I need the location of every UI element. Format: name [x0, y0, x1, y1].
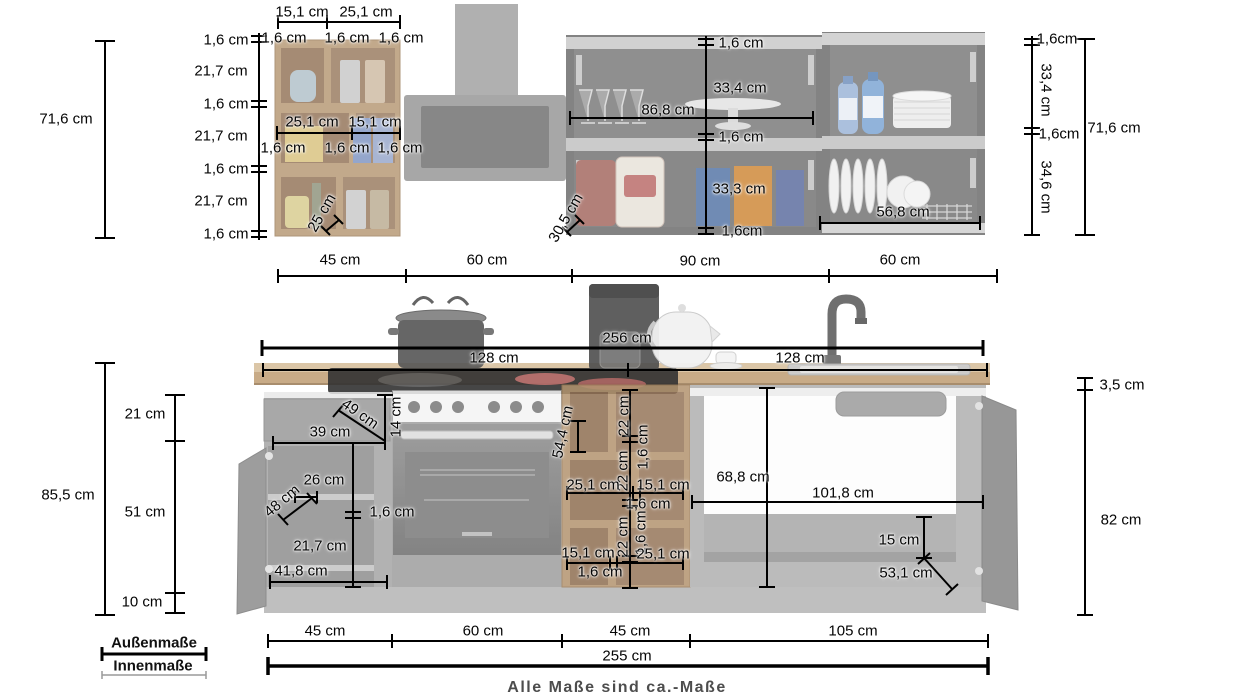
dim-label-right-heights: 82 cm: [1101, 513, 1142, 528]
dim-label-wall-shelf-left: 1,6 cm: [324, 141, 369, 156]
dim-label-base-cabinet-left: 48 cm: [262, 482, 303, 520]
dim-label-wall-unit-right: 1,6cm: [1039, 127, 1080, 142]
dim-label-wall-shelf-left: 15,1 cm: [348, 115, 401, 130]
dim-label-wall-shelf-left: 1,6 cm: [203, 162, 248, 177]
dim-label-wall-shelf-left: 1,6 cm: [260, 141, 305, 156]
dim-label-base-left-heights: 21 cm: [125, 407, 166, 422]
dim-label-wall-shelf-left: 1,6 cm: [203, 33, 248, 48]
legend-outer-label: Außenmaße: [111, 635, 197, 652]
dim-label-wall-shelf-left: 25 cm: [305, 192, 338, 235]
dim-label-width-row-bottom: 60 cm: [463, 624, 504, 639]
dimension-label-layer: 15,1 cm25,1 cm1,6 cm1,6 cm1,6 cm1,6 cm21…: [0, 0, 1245, 700]
dim-label-width-row-bottom: 45 cm: [305, 624, 346, 639]
dim-label-base-cabinet-left: 21,7 cm: [293, 539, 346, 554]
dim-label-base-cabinet-left: 39 cm: [310, 425, 351, 440]
dim-label-wall-shelf-left: 25,1 cm: [285, 115, 338, 130]
dim-label-wall-unit-right: 71,6 cm: [1087, 121, 1140, 136]
dim-label-countertop: 128 cm: [775, 351, 824, 366]
dim-label-wall-shelf-left: 71,6 cm: [39, 112, 92, 127]
dim-label-base-sink: 101,8 cm: [812, 486, 874, 501]
dim-label-base-left-heights: 51 cm: [125, 505, 166, 520]
dimension-diagram: 15,1 cm25,1 cm1,6 cm1,6 cm1,6 cm1,6 cm21…: [0, 0, 1245, 700]
dim-label-wall-unit-mid: 33,3 cm: [712, 182, 765, 197]
legend-inner-label: Innenmaße: [113, 658, 192, 675]
dim-label-base-shelf-mid: 22 cm: [616, 517, 631, 558]
dim-label-right-heights: 3,5 cm: [1099, 378, 1144, 393]
dim-label-wall-shelf-left: 21,7 cm: [194, 194, 247, 209]
dim-label-wall-shelf-left: 1,6 cm: [203, 97, 248, 112]
dim-label-wall-unit-right: 33,4 cm: [1039, 63, 1054, 116]
dim-label-base-left-heights: 85,5 cm: [41, 488, 94, 503]
dim-label-base-shelf-mid: 15,1 cm: [561, 546, 614, 561]
dim-label-wall-shelf-left: 1,6 cm: [261, 31, 306, 46]
dim-label-base-left-heights: 10 cm: [122, 595, 163, 610]
dim-label-base-shelf-mid: 54,4 cm: [550, 404, 576, 459]
dim-label-wall-shelf-left: 1,6 cm: [203, 227, 248, 242]
dim-label-wall-shelf-left: 1,6 cm: [377, 141, 422, 156]
dim-label-base-sink: 53,1 cm: [879, 566, 932, 581]
dim-label-wall-unit-mid: 33,4 cm: [713, 81, 766, 96]
dim-label-wall-unit-right: 56,8 cm: [876, 205, 929, 220]
dim-label-base-sink: 15 cm: [879, 533, 920, 548]
dim-label-width-row-top: 60 cm: [880, 253, 921, 268]
dim-label-base-shelf-mid: 22 cm: [617, 396, 632, 437]
dim-label-wall-unit-mid: 30,5 cm: [546, 191, 586, 245]
dim-label-width-row-top: 90 cm: [680, 254, 721, 269]
dim-label-width-row-top: 45 cm: [320, 253, 361, 268]
dim-label-wall-shelf-left: 1,6 cm: [378, 31, 423, 46]
dim-label-base-cabinet-left: 14 cm: [389, 397, 404, 438]
dim-label-base-shelf-mid: 25,1 cm: [566, 478, 619, 493]
dim-label-wall-unit-mid: 1,6cm: [722, 224, 763, 239]
dim-label-base-cabinet-left: 1,6 cm: [369, 505, 414, 520]
dim-label-base-sink: 68,8 cm: [716, 470, 769, 485]
dim-label-base-shelf-mid: 1,6 cm: [625, 497, 670, 512]
dim-label-wall-shelf-left: 25,1 cm: [339, 5, 392, 20]
footer-note: Alle Maße sind ca.-Maße: [507, 679, 726, 697]
dim-label-width-row-bottom: 105 cm: [828, 624, 877, 639]
dim-label-countertop: 128 cm: [469, 351, 518, 366]
dim-label-wall-unit-right: 34,6 cm: [1039, 160, 1054, 213]
dim-label-wall-unit-right: 1,6cm: [1037, 32, 1078, 47]
dim-label-wall-unit-mid: 86,8 cm: [641, 103, 694, 118]
dim-label-total-width: 255 cm: [602, 649, 651, 664]
dim-label-width-row-bottom: 45 cm: [610, 624, 651, 639]
dim-label-wall-shelf-left: 15,1 cm: [275, 5, 328, 20]
dim-label-wall-shelf-left: 21,7 cm: [194, 64, 247, 79]
dim-label-base-shelf-mid: 25,1 cm: [636, 547, 689, 562]
dim-label-base-cabinet-left: 26 cm: [304, 473, 345, 488]
dim-label-base-cabinet-left: 41,8 cm: [274, 564, 327, 579]
dim-label-base-shelf-mid: 1,6 cm: [577, 565, 622, 580]
dim-label-wall-shelf-left: 21,7 cm: [194, 129, 247, 144]
dim-label-countertop: 256 cm: [602, 331, 651, 346]
dim-label-width-row-top: 60 cm: [467, 253, 508, 268]
dim-label-base-shelf-mid: 15,1 cm: [636, 478, 689, 493]
dim-label-wall-unit-mid: 1,6 cm: [718, 130, 763, 145]
dim-label-wall-shelf-left: 1,6 cm: [324, 31, 369, 46]
dim-label-base-shelf-mid: 1,6 cm: [636, 424, 651, 469]
dim-label-wall-unit-mid: 1,6 cm: [718, 36, 763, 51]
